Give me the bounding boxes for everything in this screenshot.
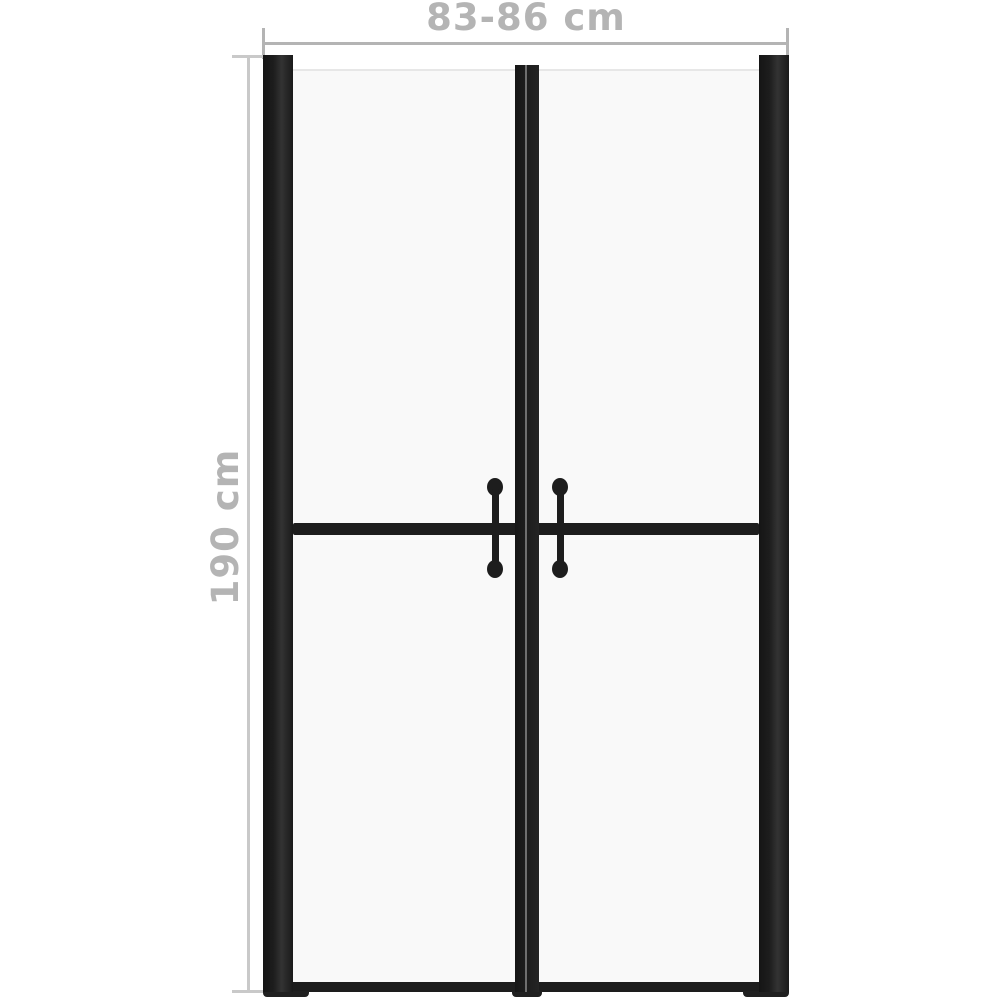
right-frame-post — [759, 55, 789, 992]
door-handle-right — [551, 478, 569, 578]
stile-divider-line — [525, 65, 527, 992]
width-dimension-label: 83-86 cm — [263, 0, 789, 39]
center-stiles — [515, 65, 539, 992]
width-dimension-line — [263, 42, 789, 45]
product-diagram: 83-86 cm 190 cm — [0, 0, 1000, 1000]
door-handle-left — [486, 478, 504, 578]
height-dimension-line — [247, 56, 250, 993]
handle-ball-bottom — [552, 560, 568, 578]
left-frame-post — [263, 55, 293, 992]
height-dimension-label: 190 cm — [206, 377, 246, 677]
height-dimension-tick-bottom — [232, 990, 265, 993]
handle-shaft — [557, 487, 564, 569]
handle-ball-bottom — [487, 560, 503, 578]
handle-shaft — [492, 487, 499, 569]
height-dimension-tick-top — [232, 55, 265, 58]
